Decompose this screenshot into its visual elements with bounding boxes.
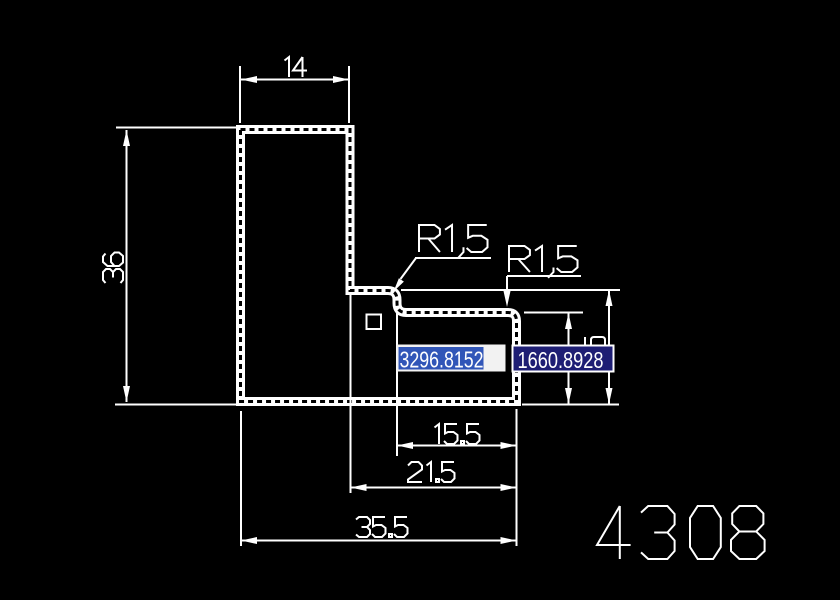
svg-text:3296.8152: 3296.8152 <box>400 347 484 373</box>
svg-text:1660.8928: 1660.8928 <box>518 347 604 373</box>
